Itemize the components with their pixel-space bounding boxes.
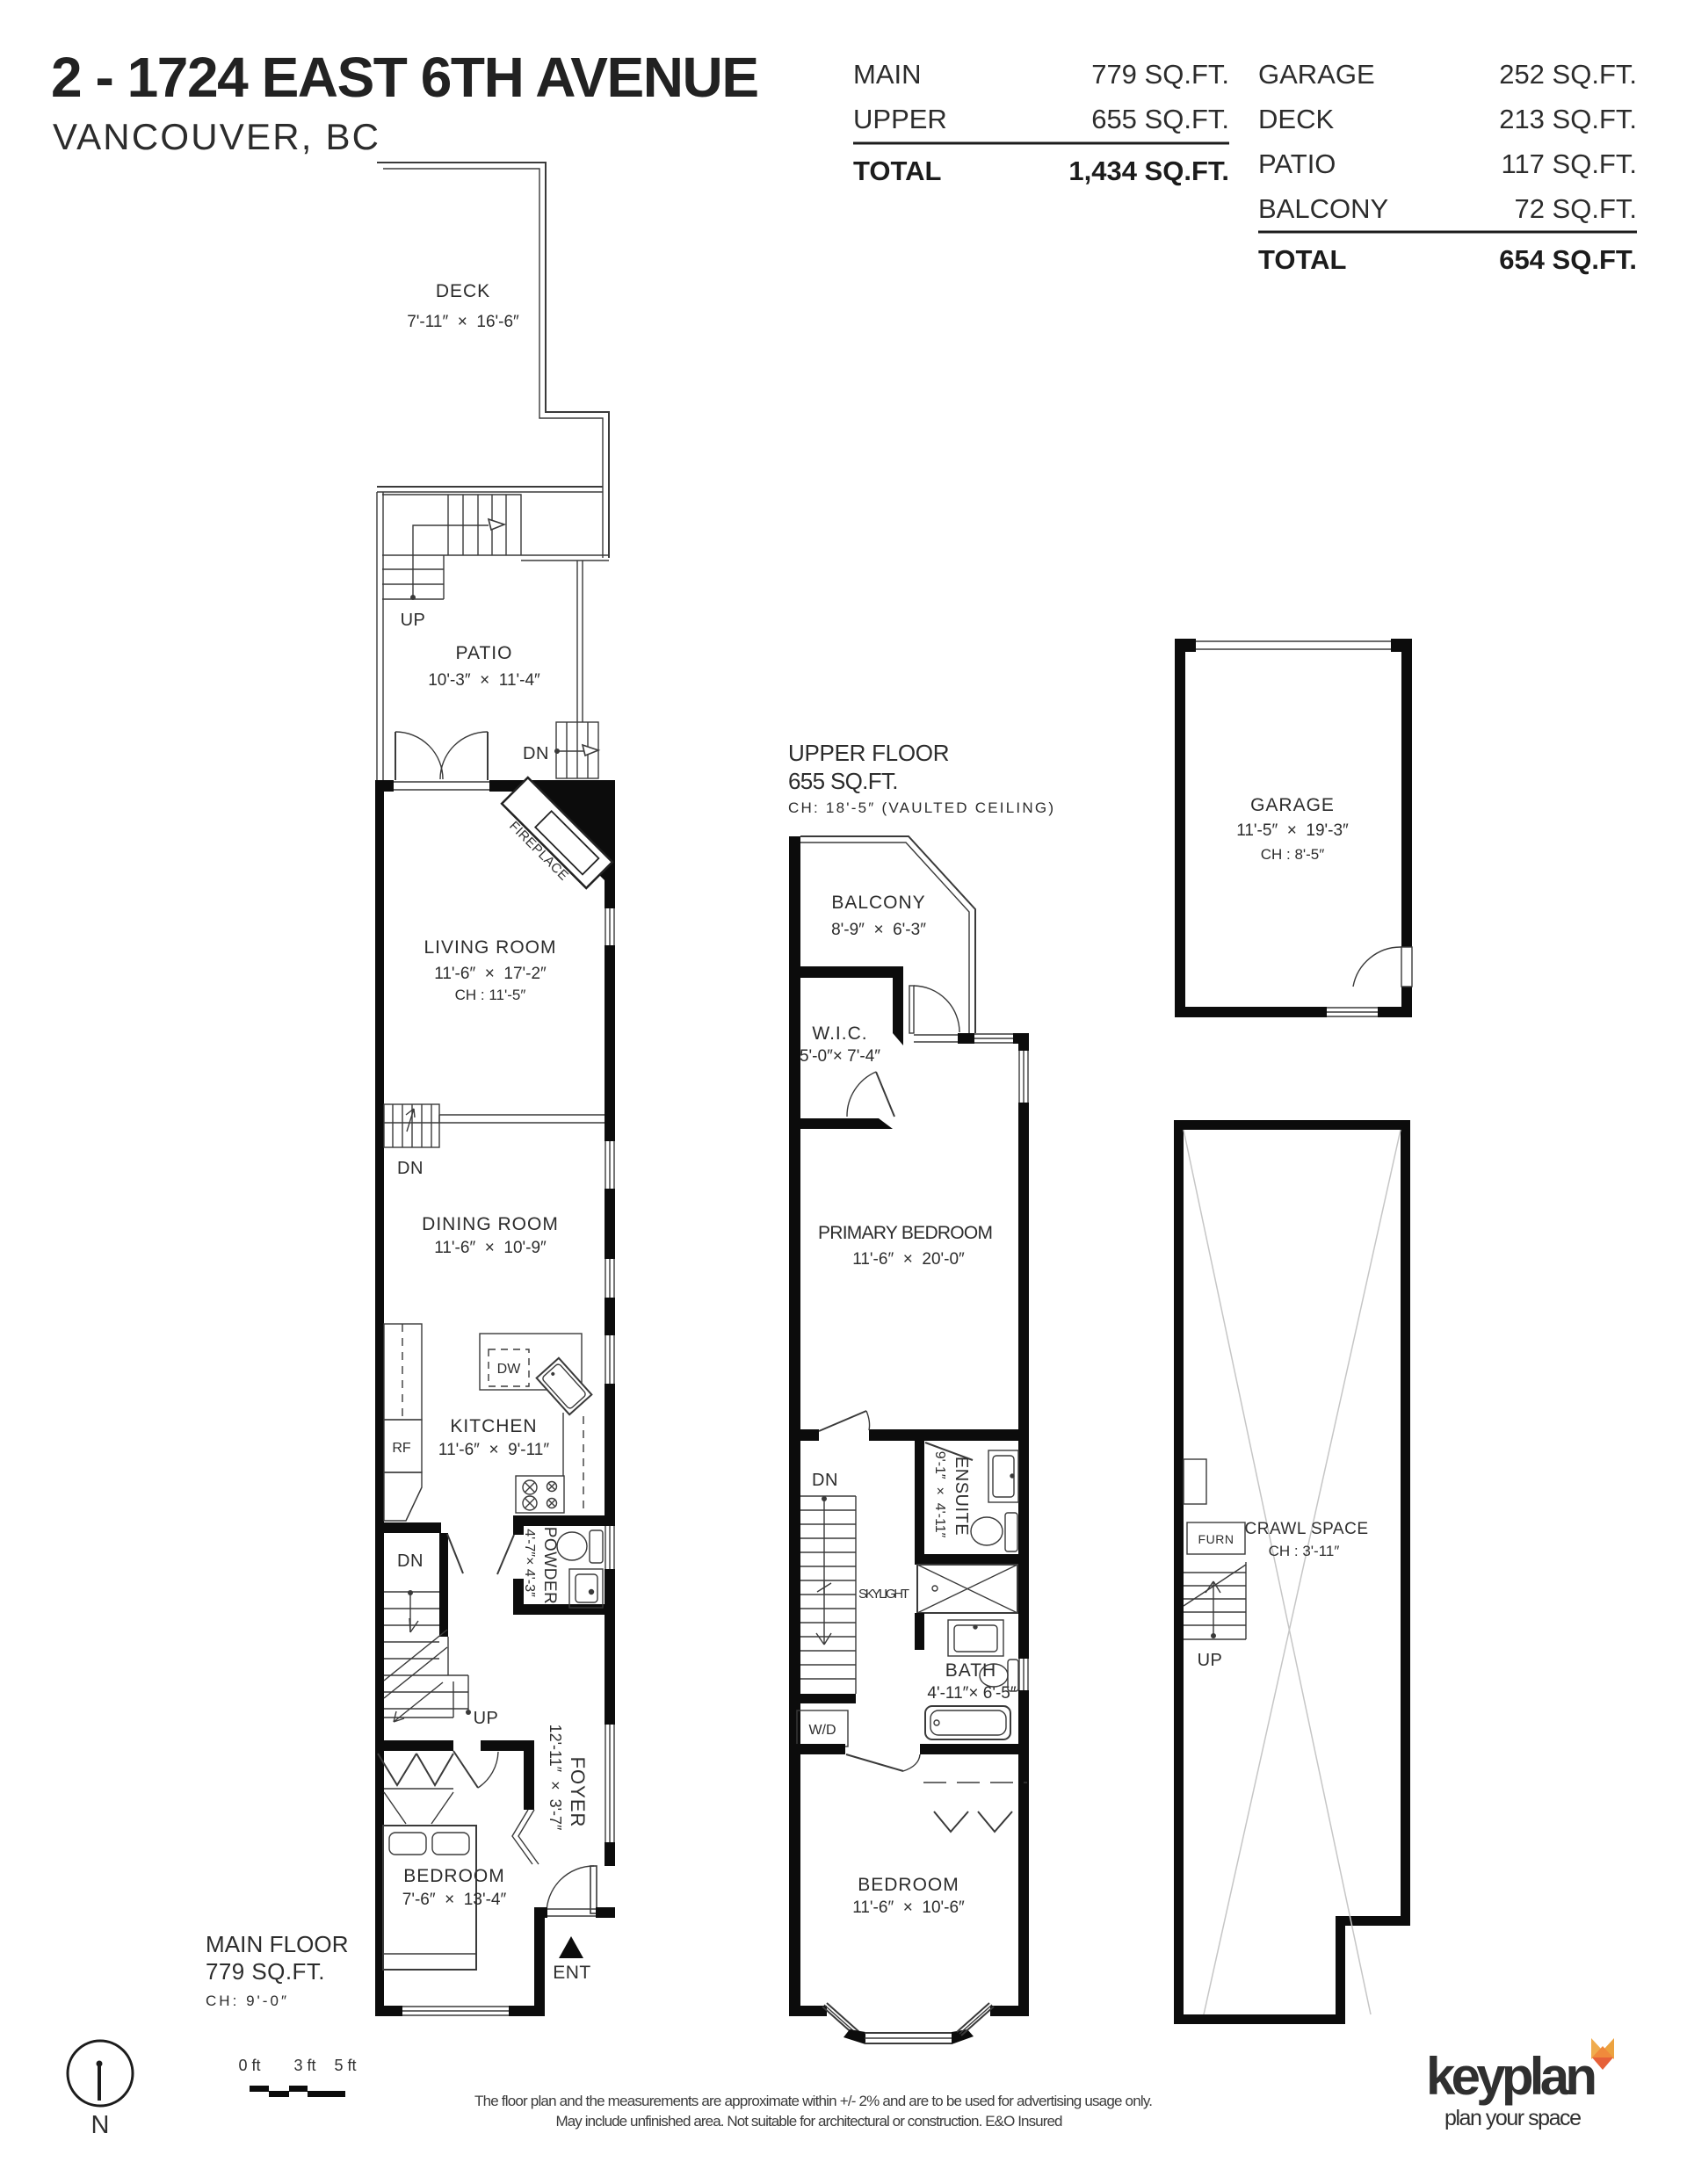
svg-text:PATIO: PATIO xyxy=(456,643,513,663)
svg-text:BALCONY: BALCONY xyxy=(1258,193,1388,224)
svg-text:5 ft: 5 ft xyxy=(334,2057,356,2074)
svg-text:MAIN FLOOR: MAIN FLOOR xyxy=(206,1931,349,1957)
svg-text:N: N xyxy=(91,2111,110,2139)
svg-text:BEDROOM: BEDROOM xyxy=(858,1875,959,1895)
svg-text:4'-7″× 4'-3″: 4'-7″× 4'-3″ xyxy=(522,1529,537,1597)
svg-text:0 ft: 0 ft xyxy=(238,2057,260,2074)
svg-text:UP: UP xyxy=(474,1709,499,1728)
svg-text:11'-6″ × 20'-0″: 11'-6″ × 20'-0″ xyxy=(852,1250,965,1269)
svg-text:SKYLIGHT: SKYLIGHT xyxy=(858,1587,909,1602)
svg-text:655 SQ.FT.: 655 SQ.FT. xyxy=(1091,104,1229,134)
svg-text:keyplan: keyplan xyxy=(1426,2047,1597,2106)
svg-text:DN: DN xyxy=(812,1471,838,1490)
svg-text:4'-11″× 6'-5″: 4'-11″× 6'-5″ xyxy=(927,1684,1016,1703)
svg-text:CH : 8'-5″: CH : 8'-5″ xyxy=(1261,846,1325,863)
svg-text:CH : 11'-5″: CH : 11'-5″ xyxy=(455,987,526,1003)
svg-text:plan your space: plan your space xyxy=(1444,2106,1582,2130)
svg-text:213 SQ.FT.: 213 SQ.FT. xyxy=(1499,104,1637,134)
svg-text:MAIN: MAIN xyxy=(853,59,922,90)
svg-text:7'-6″ × 13'-4″: 7'-6″ × 13'-4″ xyxy=(402,1891,507,1909)
svg-text:FOYER: FOYER xyxy=(567,1757,589,1828)
svg-text:ENSUITE: ENSUITE xyxy=(952,1457,971,1536)
svg-text:5'-0″× 7'-4″: 5'-0″× 7'-4″ xyxy=(800,1047,880,1066)
svg-text:DW: DW xyxy=(497,1362,522,1377)
svg-text:CRAWL SPACE: CRAWL SPACE xyxy=(1245,1520,1369,1538)
svg-text:CH: 18'-5″ (VAULTED CEILING): CH: 18'-5″ (VAULTED CEILING) xyxy=(788,799,1053,816)
svg-text:11'-5″ × 19'-3″: 11'-5″ × 19'-3″ xyxy=(1236,821,1349,840)
svg-text:RF: RF xyxy=(392,1441,411,1456)
svg-text:ENT: ENT xyxy=(553,1963,591,1983)
svg-text:UPPER: UPPER xyxy=(853,104,947,134)
svg-text:May include unfinished area. N: May include unfinished area. Not suitabl… xyxy=(556,2113,1063,2130)
svg-text:DN: DN xyxy=(523,744,549,763)
svg-text:779 SQ.FT.: 779 SQ.FT. xyxy=(206,1958,325,1985)
svg-text:11'-6″ × 9'-11″: 11'-6″ × 9'-11″ xyxy=(438,1441,549,1459)
svg-text:1,434 SQ.FT.: 1,434 SQ.FT. xyxy=(1068,155,1229,186)
svg-text:252 SQ.FT.: 252 SQ.FT. xyxy=(1499,59,1637,90)
svg-text:POWDER: POWDER xyxy=(540,1527,559,1605)
svg-text:654 SQ.FT.: 654 SQ.FT. xyxy=(1499,244,1637,275)
svg-text:W.I.C.: W.I.C. xyxy=(812,1023,867,1044)
svg-text:11'-6″ × 10'-9″: 11'-6″ × 10'-9″ xyxy=(434,1239,547,1257)
svg-text:UP: UP xyxy=(1198,1651,1223,1670)
svg-text:DECK: DECK xyxy=(1258,104,1334,134)
svg-text:CH : 3'-11″: CH : 3'-11″ xyxy=(1269,1543,1340,1559)
svg-text:117 SQ.FT.: 117 SQ.FT. xyxy=(1502,148,1638,179)
svg-text:9'-1″ × 4'-11″: 9'-1″ × 4'-11″ xyxy=(932,1451,947,1538)
svg-text:11'-6″ × 17'-2″: 11'-6″ × 17'-2″ xyxy=(434,965,547,983)
svg-text:655 SQ.FT.: 655 SQ.FT. xyxy=(788,768,899,794)
svg-text:W/D: W/D xyxy=(808,1723,836,1738)
svg-text:12'-11″ × 3'-7″: 12'-11″ × 3'-7″ xyxy=(547,1725,564,1831)
svg-text:PATIO: PATIO xyxy=(1258,148,1336,179)
svg-text:VANCOUVER, BC: VANCOUVER, BC xyxy=(53,116,380,157)
svg-text:8'-9″ × 6'-3″: 8'-9″ × 6'-3″ xyxy=(831,921,926,939)
svg-text:BATH: BATH xyxy=(945,1660,996,1681)
svg-text:7'-11″ × 16'-6″: 7'-11″ × 16'-6″ xyxy=(407,313,519,331)
svg-text:TOTAL: TOTAL xyxy=(1258,244,1346,275)
svg-text:GARAGE: GARAGE xyxy=(1250,795,1335,815)
svg-text:779 SQ.FT.: 779 SQ.FT. xyxy=(1091,59,1229,90)
svg-text:GARAGE: GARAGE xyxy=(1258,59,1375,90)
svg-text:DINING ROOM: DINING ROOM xyxy=(422,1214,559,1234)
svg-text:DN: DN xyxy=(397,1159,424,1178)
svg-text:11'-6″ × 10'-6″: 11'-6″ × 10'-6″ xyxy=(852,1898,965,1917)
svg-text:2 - 1724 EAST 6TH AVENUE: 2 - 1724 EAST 6TH AVENUE xyxy=(51,46,759,109)
svg-text:DECK: DECK xyxy=(436,281,490,301)
svg-text:The floor plan and the measure: The floor plan and the measurements are … xyxy=(474,2093,1153,2109)
svg-text:UPPER FLOOR: UPPER FLOOR xyxy=(788,740,950,766)
svg-text:BALCONY: BALCONY xyxy=(831,893,925,913)
svg-text:72 SQ.FT.: 72 SQ.FT. xyxy=(1514,193,1637,224)
svg-text:10'-3″ × 11'-4″: 10'-3″ × 11'-4″ xyxy=(428,671,540,690)
svg-text:BEDROOM: BEDROOM xyxy=(403,1866,505,1886)
svg-text:3 ft: 3 ft xyxy=(293,2057,315,2074)
svg-text:DN: DN xyxy=(397,1551,424,1571)
svg-text:LIVING ROOM: LIVING ROOM xyxy=(424,937,556,958)
svg-text:PRIMARY BEDROOM: PRIMARY BEDROOM xyxy=(818,1223,994,1243)
svg-text:FURN: FURN xyxy=(1198,1532,1234,1546)
svg-text:UP: UP xyxy=(401,611,426,630)
svg-text:TOTAL: TOTAL xyxy=(853,155,941,186)
svg-text:KITCHEN: KITCHEN xyxy=(450,1416,537,1436)
